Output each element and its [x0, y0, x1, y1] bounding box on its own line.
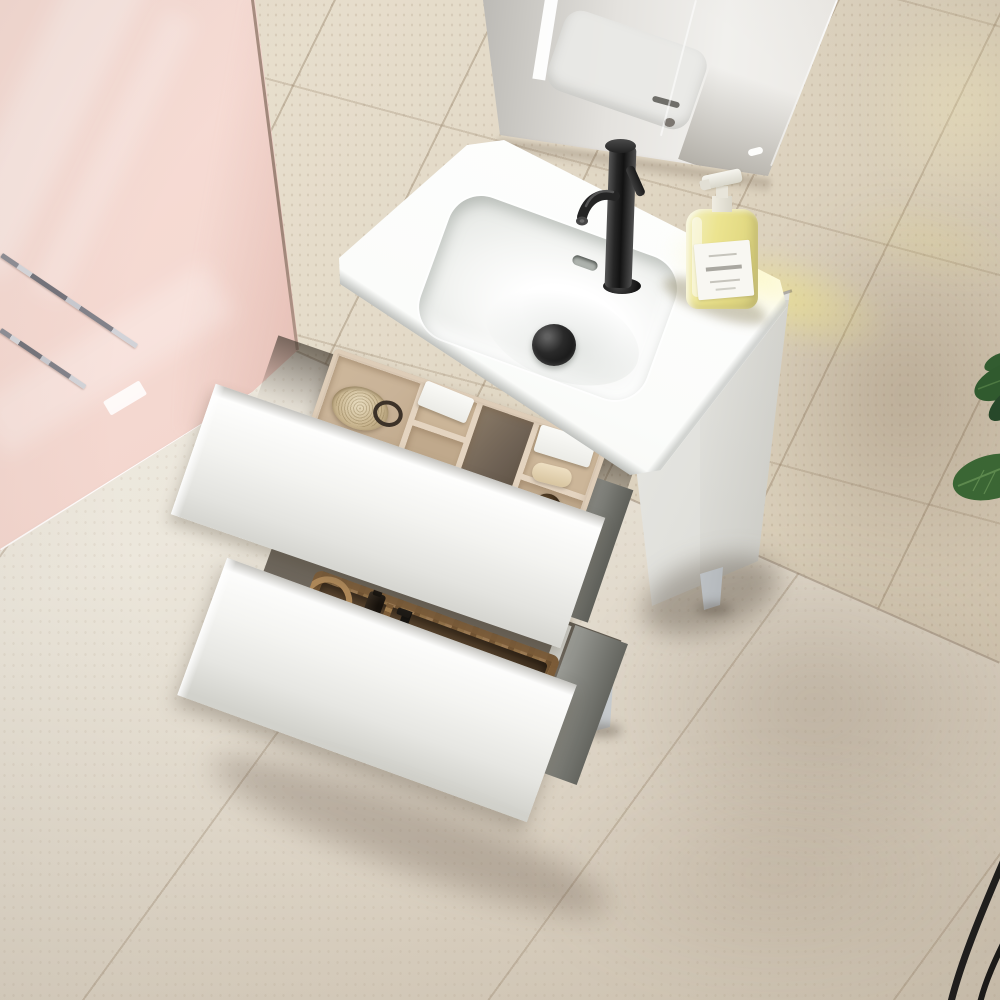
bathroom-scene — [0, 0, 1000, 1000]
vignette — [0, 0, 1000, 1000]
